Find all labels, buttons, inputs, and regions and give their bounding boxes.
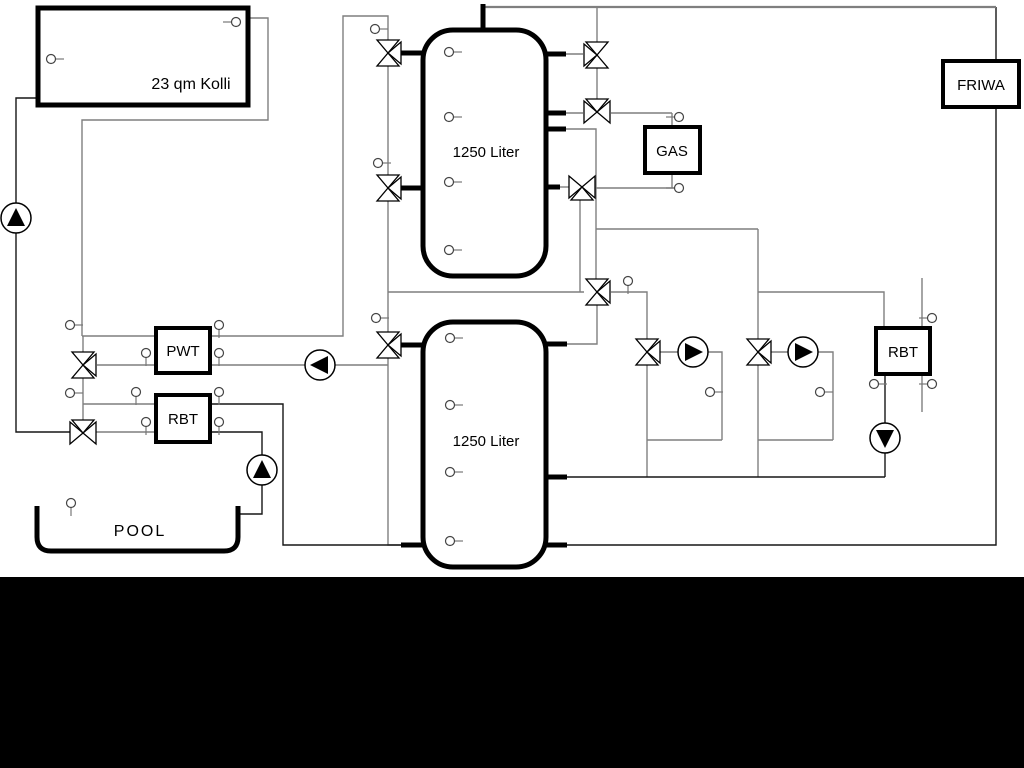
- pool-label: POOL: [114, 523, 166, 540]
- buffer-tank-1-label: 1250 Liter: [453, 144, 520, 161]
- temperature-sensor-icon: [142, 349, 151, 367]
- pump-icon: [788, 337, 818, 367]
- pump-icon: [678, 337, 708, 367]
- return-pipes: [567, 7, 996, 545]
- friwa-label: FRIWA: [957, 77, 1005, 94]
- temperature-sensor-icon: [215, 349, 224, 367]
- three-way-valve-icon: [377, 40, 401, 66]
- pump-icon: [305, 350, 335, 380]
- three-way-valve-icon: [584, 42, 608, 68]
- pump-icon: [870, 423, 900, 453]
- fresh-water-station-friwa: FRIWA: [943, 61, 1019, 107]
- rbt-pool-label: RBT: [168, 411, 198, 428]
- collector-return-pipes: [16, 98, 70, 432]
- three-way-valve-icon: [70, 420, 96, 444]
- three-way-valve-icon: [586, 279, 610, 305]
- temperature-sensor-icon: [666, 113, 684, 122]
- temperature-sensor-icon: [66, 389, 84, 398]
- temperature-sensor-icon: [666, 184, 684, 193]
- gas-label: GAS: [656, 143, 688, 160]
- buffer-tank-1: 1250 Liter: [423, 30, 546, 276]
- letterbox-bottom: [0, 577, 1024, 768]
- temperature-sensor-icon: [371, 25, 389, 34]
- temperature-sensor-icon: [706, 388, 724, 397]
- plate-heat-exchanger-pwt: PWT: [156, 328, 210, 373]
- solar-collector: 23 qm Kolli: [38, 8, 248, 105]
- three-way-valve-icon: [584, 99, 610, 123]
- gas-boiler: GAS: [645, 127, 700, 173]
- hydraulic-schematic-diagram: 23 qm Kolli 1250 Liter 1250 Liter PWT RB…: [0, 0, 1024, 768]
- temperature-sensor-icon: [66, 321, 84, 330]
- buffer-tank-2: 1250 Liter: [423, 322, 546, 567]
- three-way-valve-icon: [377, 175, 401, 201]
- solar-collector-label: 23 qm Kolli: [151, 76, 230, 93]
- temperature-sensor-icon: [215, 388, 224, 406]
- distribution-pipes: [560, 8, 922, 477]
- schematic-screenshot: 23 qm Kolli 1250 Liter 1250 Liter PWT RB…: [0, 0, 1024, 768]
- rbt-right-label: RBT: [888, 344, 918, 361]
- pool-heat-exchanger-rbt: RBT: [156, 395, 210, 442]
- three-way-valve-icon: [569, 176, 595, 200]
- three-way-valve-icon: [72, 352, 96, 378]
- buffer-tank-2-label: 1250 Liter: [453, 433, 520, 450]
- temperature-sensor-icon: [372, 314, 390, 323]
- temperature-sensor-icon: [132, 388, 141, 406]
- pump-icon: [1, 203, 31, 233]
- three-way-valve-icon: [747, 339, 771, 365]
- temperature-sensor-icon: [816, 388, 834, 397]
- three-way-valve-icon: [377, 332, 401, 358]
- pump-icon: [247, 455, 277, 485]
- three-way-valve-icon: [636, 339, 660, 365]
- heating-heat-exchanger-rbt: RBT: [876, 328, 930, 374]
- pwt-label: PWT: [166, 343, 199, 360]
- pool-basin: POOL: [37, 506, 238, 551]
